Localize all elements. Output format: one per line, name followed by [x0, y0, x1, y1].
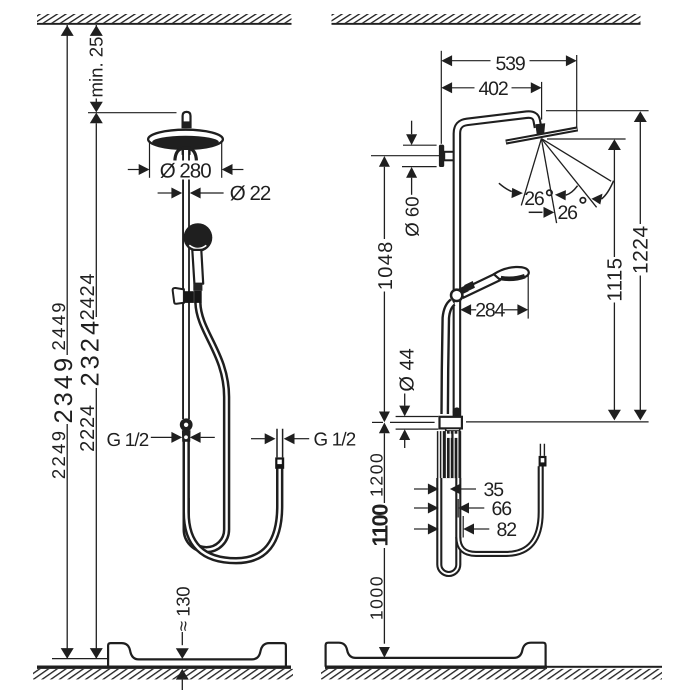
svg-text:1048: 1048	[375, 240, 397, 290]
svg-text:2224: 2224	[77, 404, 99, 452]
svg-text:1000: 1000	[367, 575, 387, 620]
svg-text:Ø 60: Ø 60	[401, 196, 422, 236]
svg-text:82: 82	[497, 519, 517, 541]
svg-text:≈ 130: ≈ 130	[172, 587, 193, 631]
svg-text:Ø 280: Ø 280	[160, 160, 211, 183]
svg-text:26: 26	[524, 188, 544, 210]
svg-text:284: 284	[475, 300, 505, 322]
svg-text:min. 25: min. 25	[85, 37, 106, 98]
svg-text:1224: 1224	[629, 225, 652, 274]
svg-text:G 1/2: G 1/2	[314, 428, 356, 449]
svg-text:Ø 44: Ø 44	[397, 348, 419, 391]
svg-text:2424: 2424	[77, 273, 99, 321]
svg-text:G 1/2: G 1/2	[107, 429, 149, 450]
svg-text:26: 26	[557, 202, 577, 224]
svg-text:2449: 2449	[48, 300, 69, 350]
svg-text:1115: 1115	[603, 258, 626, 302]
svg-text:2324: 2324	[77, 318, 105, 387]
svg-text:2249: 2249	[48, 429, 69, 479]
svg-text:66: 66	[492, 498, 512, 520]
svg-text:402: 402	[479, 78, 508, 100]
svg-text:539: 539	[496, 53, 525, 75]
svg-text:Ø 22: Ø 22	[230, 182, 271, 205]
svg-text:2349: 2349	[50, 355, 78, 424]
svg-text:1100: 1100	[367, 504, 392, 547]
svg-text:1200: 1200	[366, 452, 386, 497]
